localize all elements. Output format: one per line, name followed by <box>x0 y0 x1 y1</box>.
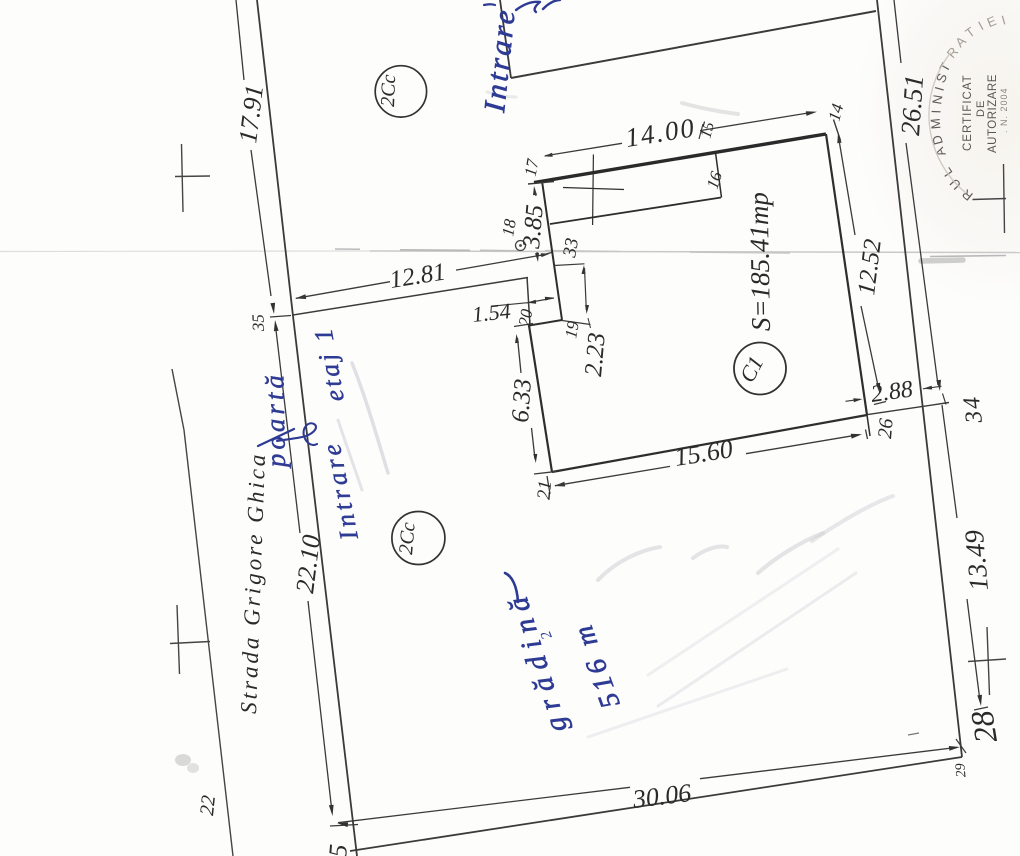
svg-text:35: 35 <box>248 314 268 333</box>
svg-text:22: 22 <box>196 794 220 816</box>
svg-text:CERTIFICAT: CERTIFICAT <box>962 74 974 151</box>
svg-text:3.85: 3.85 <box>518 204 549 251</box>
svg-text:33: 33 <box>559 237 583 260</box>
svg-text:34: 34 <box>959 393 988 425</box>
svg-text:21: 21 <box>534 480 557 501</box>
svg-text:2.23: 2.23 <box>580 332 611 378</box>
svg-text:2Cc: 2Cc <box>377 74 400 107</box>
svg-text:poartă: poartă <box>259 371 291 470</box>
svg-text:I: I <box>929 110 944 114</box>
svg-text:DE: DE <box>975 100 987 117</box>
svg-text:29: 29 <box>953 763 969 778</box>
svg-text:6.33: 6.33 <box>507 378 537 424</box>
svg-text:2Cc: 2Cc <box>395 521 420 555</box>
svg-text:13.49: 13.49 <box>959 528 994 592</box>
svg-text:AUTORIZARE: AUTORIZARE <box>987 74 999 153</box>
svg-text:28: 28 <box>963 708 1004 745</box>
svg-text:1.54: 1.54 <box>471 298 512 327</box>
svg-text:. N. 2004: . N. 2004 <box>999 87 1009 133</box>
svg-text:S=185.41mp: S=185.41mp <box>744 192 776 331</box>
svg-text:26: 26 <box>874 418 898 440</box>
svg-text:26.51: 26.51 <box>895 74 929 137</box>
